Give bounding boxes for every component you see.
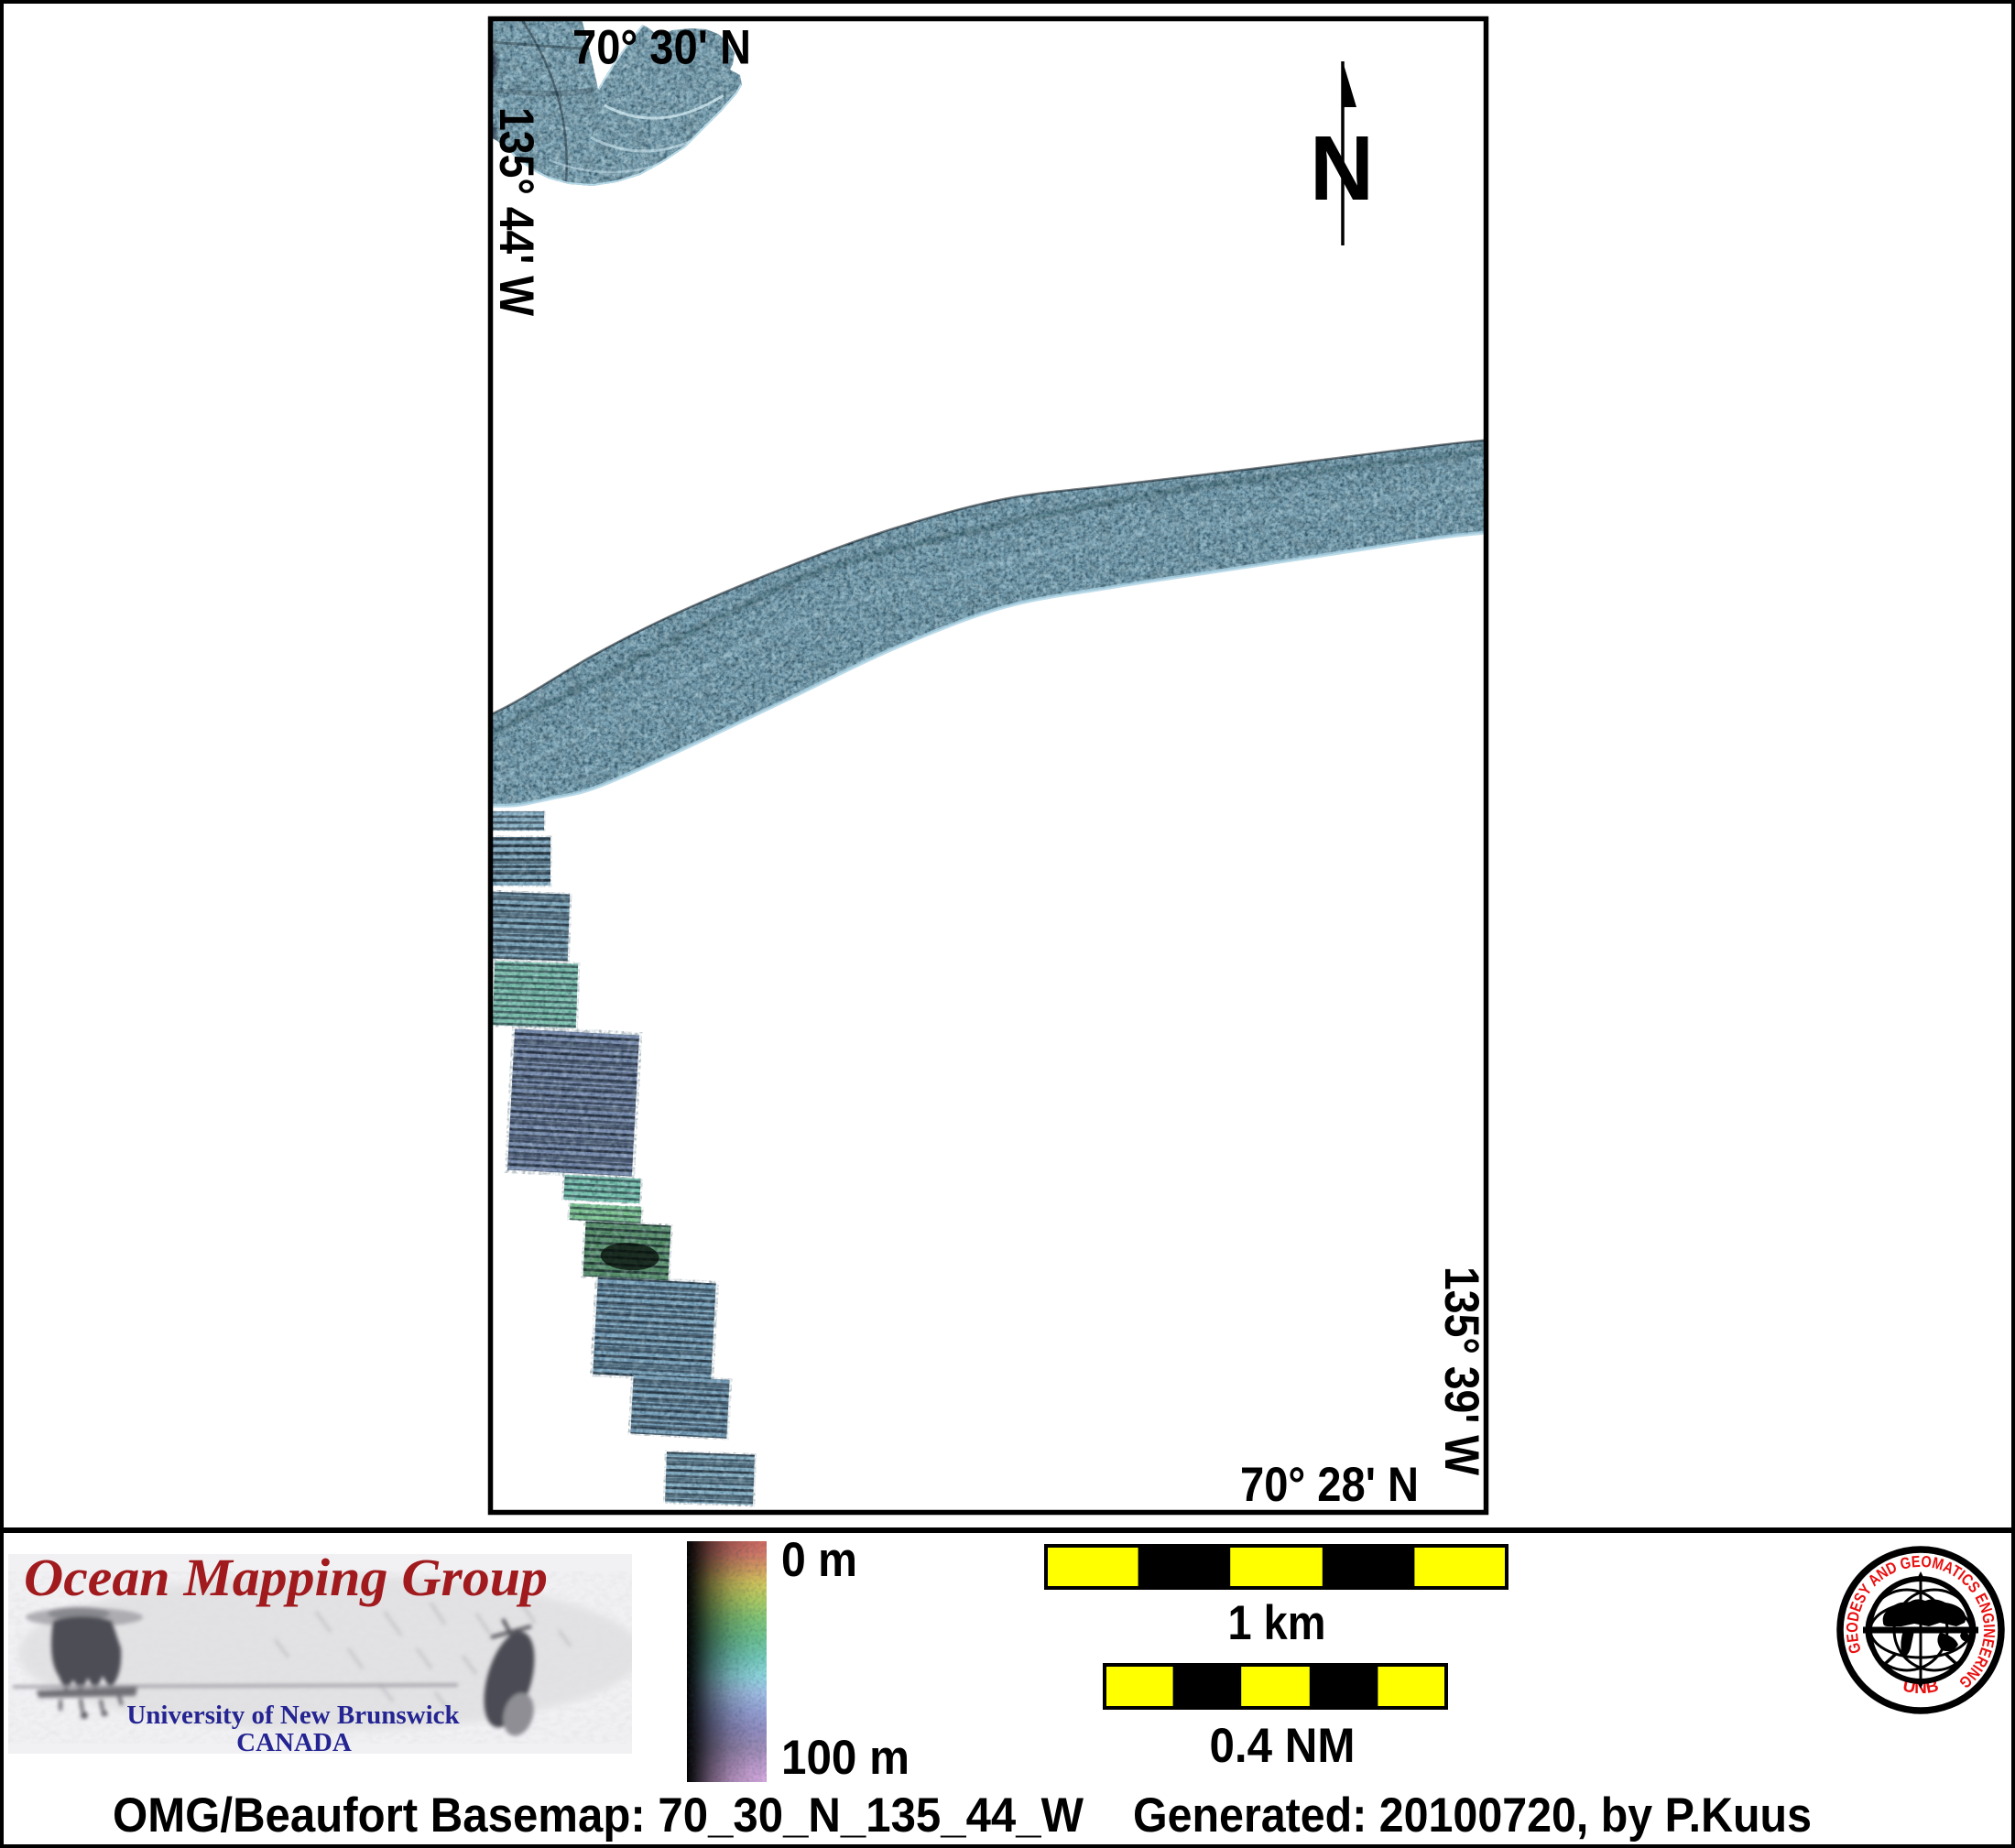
svg-text:OMG/Beaufort Basemap: 70_30_N_: OMG/Beaufort Basemap: 70_30_N_135_44_W bbox=[113, 1788, 1084, 1843]
svg-text:70° 28' N: 70° 28' N bbox=[1240, 1458, 1419, 1512]
svg-text:Generated: 20100720, by P.Kuus: Generated: 20100720, by P.Kuus bbox=[1133, 1788, 1812, 1843]
svg-text:University of New Brunswick: University of New Brunswick bbox=[126, 1701, 460, 1730]
svg-text:N: N bbox=[1310, 117, 1374, 220]
svg-text:135° 44' W: 135° 44' W bbox=[489, 107, 543, 316]
svg-text:CANADA: CANADA bbox=[236, 1728, 352, 1757]
svg-text:100 m: 100 m bbox=[781, 1731, 909, 1785]
svg-text:70° 30' N: 70° 30' N bbox=[572, 21, 751, 75]
svg-text:Ocean Mapping Group: Ocean Mapping Group bbox=[24, 1548, 548, 1607]
svg-text:1 km: 1 km bbox=[1228, 1596, 1326, 1650]
svg-text:0.4 NM: 0.4 NM bbox=[1210, 1719, 1356, 1773]
svg-text:0 m: 0 m bbox=[781, 1533, 857, 1587]
svg-text:135° 39' W: 135° 39' W bbox=[1434, 1266, 1488, 1475]
